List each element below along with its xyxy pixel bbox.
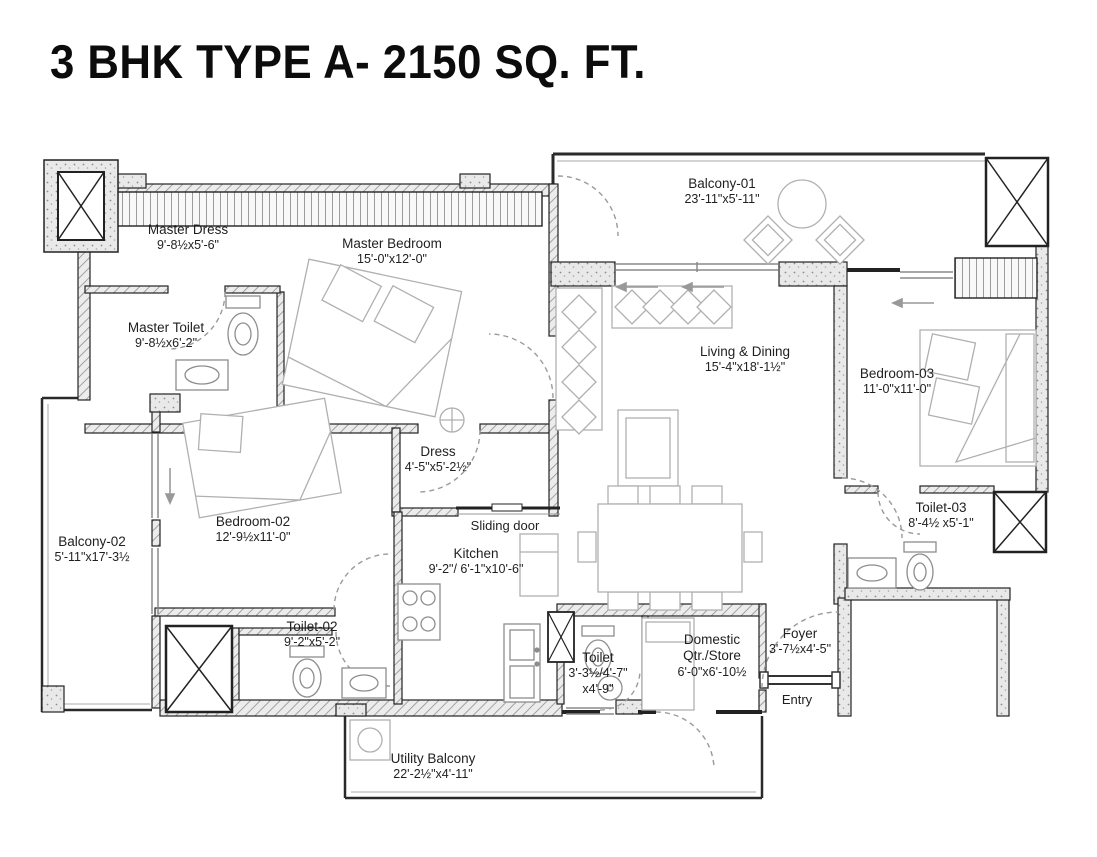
bedroom-03-bed [920,330,1036,466]
room-label-toilet: Toilet 3'-3½/4'-7" x4'-9" [568,650,627,697]
room-name: Foyer [769,626,831,642]
coffee-table [618,410,678,486]
dining-table [578,486,762,610]
washing-machine [350,720,390,760]
room-dims: 3'-3½/4'-7" [568,666,627,681]
room-label-bedroom-03: Bedroom-03 11'-0"x11'-0" [860,366,934,398]
room-dims: x4'-9" [568,682,627,697]
bedroom-02-bed [182,392,342,518]
room-label-toilet-02: Toilet-02 9'-2"x5'-2" [284,619,340,651]
room-label-utility-balcony: Utility Balcony 22'-2½"x4'-11" [391,751,476,783]
room-label-kitchen: Kitchen 9'-2"/ 6'-1"x10'-6" [429,546,524,578]
room-name: Toilet-03 [908,500,974,516]
room-dims: 5'-11"x17'-3½ [55,550,130,565]
room-name: Balcony-02 [55,534,130,550]
room-dims: 9'-2"/ 6'-1"x10'-6" [429,562,524,577]
room-name: Toilet-02 [284,619,340,635]
room-name: Balcony-01 [684,176,759,192]
shaft-symbol-toilet-03 [994,492,1046,552]
room-dims: 15'-0"x12'-0" [342,252,442,267]
toilet-03-fixtures [848,542,936,590]
entry-door [760,672,840,688]
sliding-door-label: Sliding door [471,518,540,533]
wardrobe-bedroom-03 [955,258,1037,298]
room-dims: 15'-4"x18'-1½" [700,360,790,375]
room-dims: 6'-0"x6'-10½ [662,665,762,680]
room-dims: 22'-2½"x4'-11" [391,767,476,782]
left-arrow-icon [893,299,934,307]
room-name: Bedroom-03 [860,366,934,382]
room-dims: 8'-4½ x5'-1" [908,516,974,531]
plan-title: 3 BHK TYPE A- 2150 SQ. FT. [50,34,646,89]
kitchen-fridge [520,534,558,596]
room-name: Master Bedroom [342,236,442,252]
room-label-toilet-03: Toilet-03 8'-4½ x5'-1" [908,500,974,532]
room-name: Kitchen [429,546,524,562]
room-dims: 4'-5"x5'-2½" [405,460,471,475]
kitchen-stove [398,584,440,640]
room-name: Living & Dining [700,344,790,360]
room-label-master-bedroom: Master Bedroom 15'-0"x12'-0" [342,236,442,268]
toilet-02-fixtures [290,646,386,698]
room-label-foyer: Foyer 3'-7½x4'-5" [769,626,831,658]
sliding-door [456,504,560,514]
down-arrow-icon [166,468,174,503]
room-label-domestic: Domestic Qtr./Store 6'-0"x6'-10½ [662,632,762,680]
room-dims: 9'-8½x6'-2" [128,336,204,351]
master-bed [282,258,461,417]
room-dims: 12'-9½x11'-0" [216,530,291,545]
room-name: Domestic Qtr./Store [662,632,762,665]
room-name: Toilet [568,650,627,666]
room-name: Dress [405,444,471,460]
floorplan-drawing [0,0,1097,857]
shaft-symbol-top-left [44,160,118,252]
room-dims: 23'-11"x5'-11" [684,192,759,207]
room-name: Master Toilet [128,320,204,336]
shaft-symbol-top-right [986,158,1048,246]
balcony-01-seating [744,180,864,264]
room-dims: 9'-2"x5'-2" [284,635,340,650]
room-label-master-toilet: Master Toilet 9'-8½x6'-2" [128,320,204,352]
room-dims: 9'-8½x5'-6" [148,238,228,253]
entry-label: Entry [782,692,812,707]
wardrobe-master-dress [110,192,542,226]
shaft-symbol-bedroom-02 [166,626,232,712]
room-label-bedroom-02: Bedroom-02 12'-9½x11'-0" [216,514,291,546]
room-label-master-dress: Master Dress 9'-8½x5'-6" [148,222,228,254]
room-label-balcony-01: Balcony-01 23'-11"x5'-11" [684,176,759,208]
room-label-dress: Dress 4'-5"x5'-2½" [405,444,471,476]
room-label-balcony-02: Balcony-02 5'-11"x17'-3½ [55,534,130,566]
room-name: Bedroom-02 [216,514,291,530]
room-dims: 11'-0"x11'-0" [860,382,934,397]
room-dims: 3'-7½x4'-5" [769,642,831,657]
room-name: Utility Balcony [391,751,476,767]
room-label-living-dining: Living & Dining 15'-4"x18'-1½" [700,344,790,376]
room-name: Master Dress [148,222,228,238]
kitchen-sink [504,624,540,702]
floorplan-canvas: 3 BHK TYPE A- 2150 SQ. FT. Master Dress … [0,0,1097,857]
